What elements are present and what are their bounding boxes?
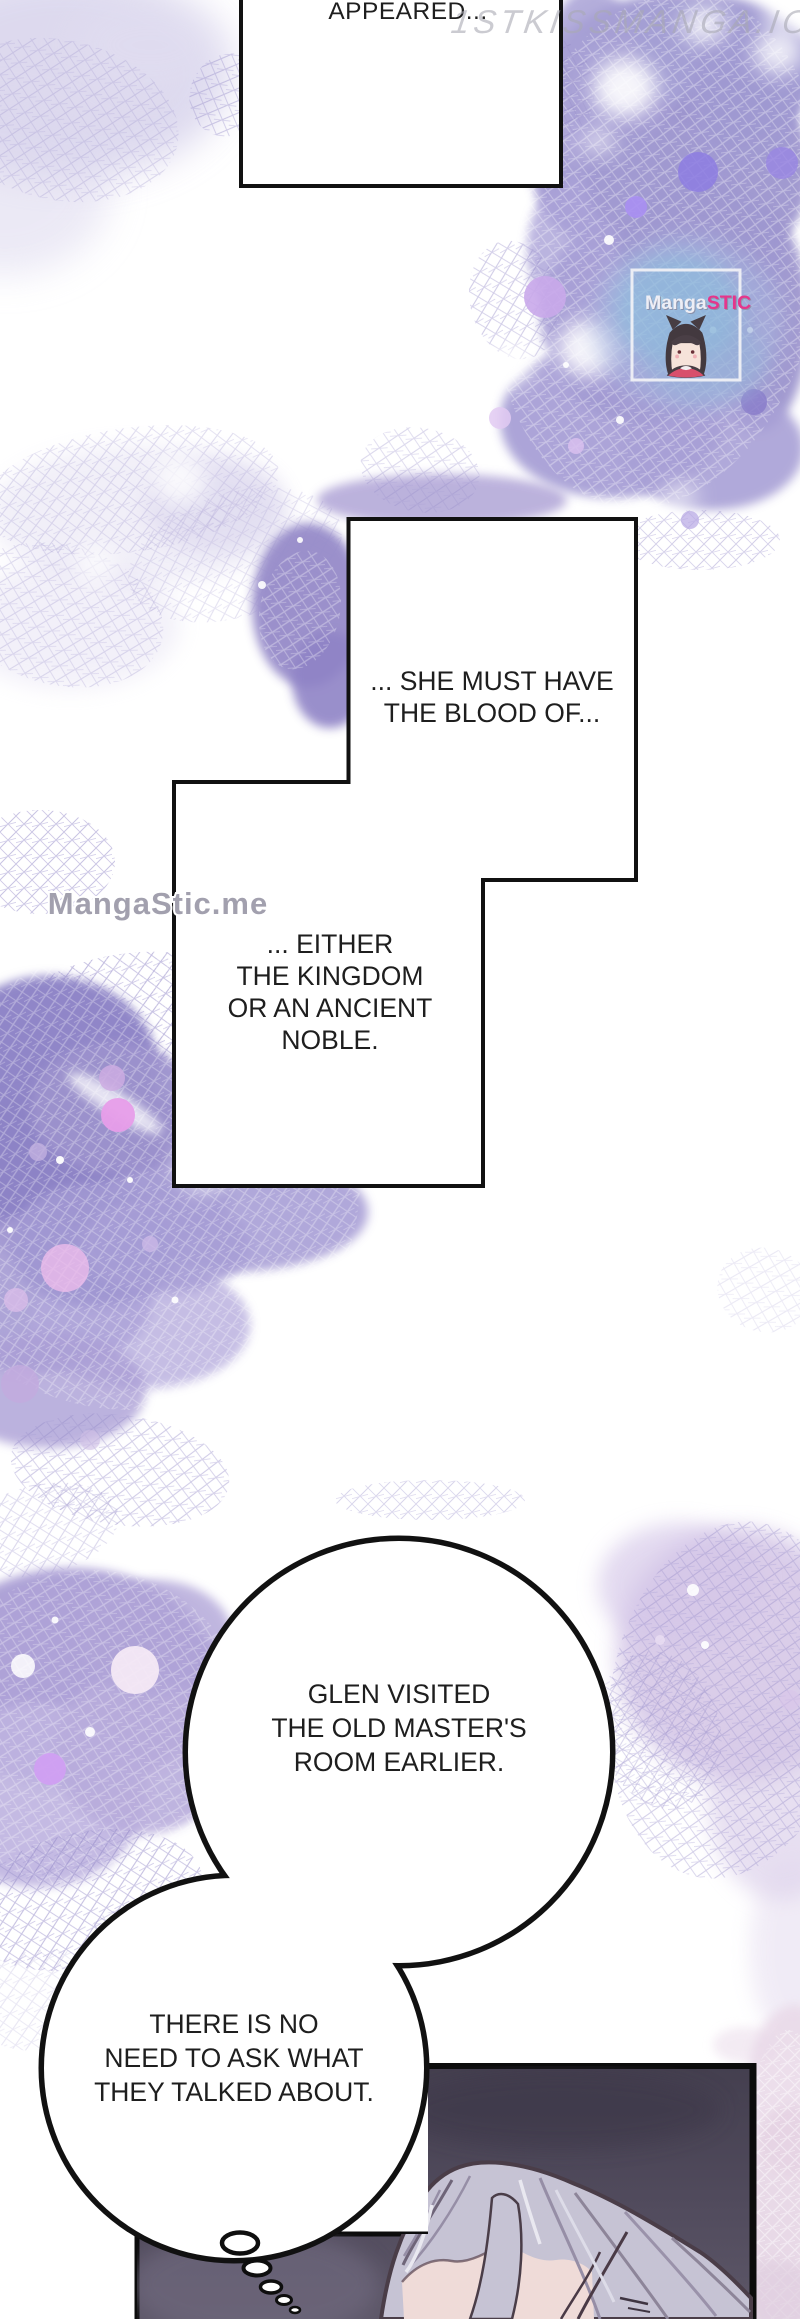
svg-text:MangaSTIC: MangaSTIC	[645, 292, 751, 314]
svg-text:THE BLOOD OF...: THE BLOOD OF...	[384, 698, 600, 728]
svg-text:THE OLD MASTER'S: THE OLD MASTER'S	[271, 1713, 526, 1743]
svg-text:THE KINGDOM: THE KINGDOM	[237, 961, 424, 991]
svg-text:THEY TALKED ABOUT.: THEY TALKED ABOUT.	[94, 2077, 374, 2107]
svg-text:... EITHER: ... EITHER	[267, 929, 394, 959]
svg-text:THERE IS NO: THERE IS NO	[149, 2009, 318, 2039]
svg-text:ROOM EARLIER.: ROOM EARLIER.	[294, 1747, 505, 1777]
svg-text:... SHE MUST HAVE: ... SHE MUST HAVE	[370, 666, 613, 696]
svg-text:1STKISSMANGA.IO: 1STKISSMANGA.IO	[449, 4, 800, 41]
svg-text:GLEN VISITED: GLEN VISITED	[308, 1679, 491, 1709]
svg-text:OR AN ANCIENT: OR AN ANCIENT	[228, 993, 433, 1023]
svg-text:NOBLE.: NOBLE.	[281, 1025, 378, 1055]
svg-text:MangaStic.me: MangaStic.me	[48, 886, 268, 921]
svg-text:NEED TO ASK WHAT: NEED TO ASK WHAT	[104, 2043, 363, 2073]
